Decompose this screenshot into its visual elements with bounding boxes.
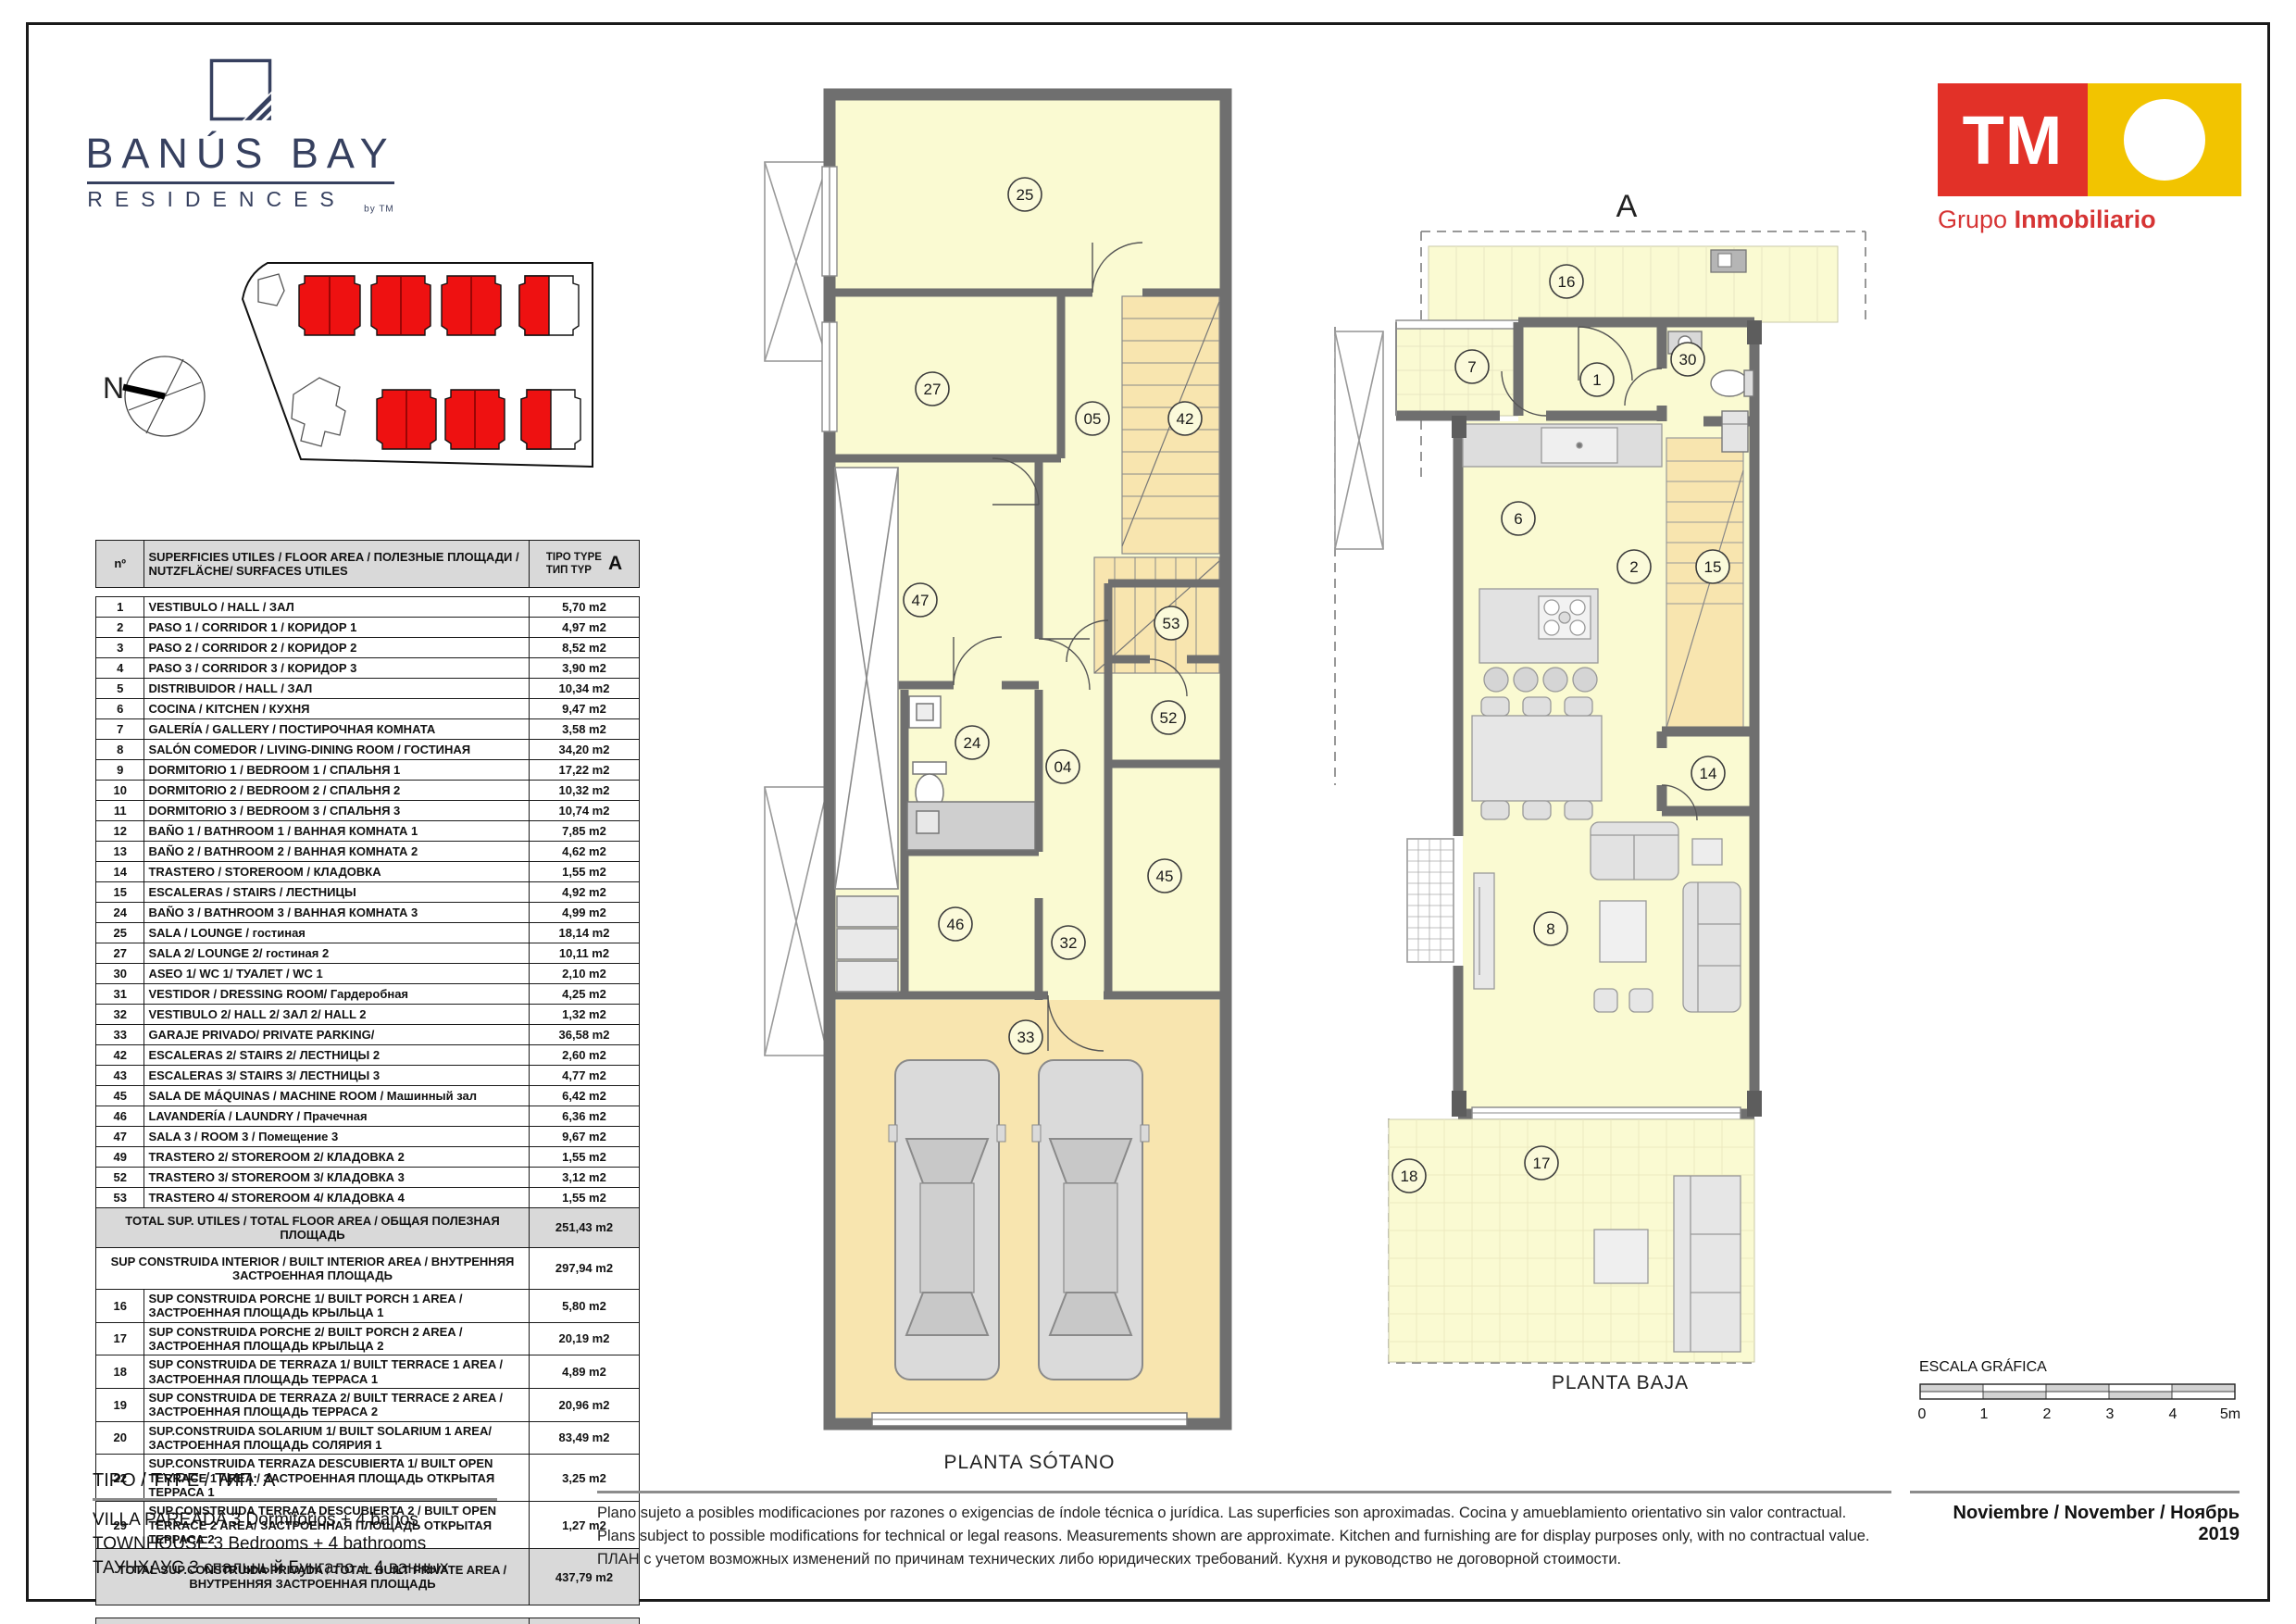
room-label: 16 <box>1550 265 1583 298</box>
svg-text:17: 17 <box>1533 1155 1551 1172</box>
svg-text:42: 42 <box>1177 410 1194 428</box>
scale-title: ESCALA GRÁFICA <box>1919 1359 2240 1376</box>
area-row: 11DORMITORIO 3 / BEDROOM 3 / СПАЛЬНЯ 310… <box>96 801 640 821</box>
area-row: 52TRASTERO 3/ STOREROOM 3/ КЛАДОВКА 33,1… <box>96 1168 640 1188</box>
area-row: 12BAÑO 1 / BATHROOM 1 / ВАННАЯ КОМНАТА 1… <box>96 821 640 842</box>
area-row: 2PASO 1 / CORRIDOR 1 / КОРИДОР 14,97 m2 <box>96 618 640 638</box>
area-row: 18SUP CONSTRUIDA DE TERRAZA 1/ BUILT TER… <box>96 1355 640 1389</box>
scale-tick-labels: 0 1 2 3 4 5m <box>1919 1406 2240 1425</box>
tm-yellow-block <box>2088 83 2241 196</box>
brand-name: BANÚS BAY <box>85 130 396 178</box>
area-row: 24BAÑO 3 / BATHROOM 3 / ВАННАЯ КОМНАТА 3… <box>96 903 640 923</box>
area-row: 49TRASTERO 2/ STOREROOM 2/ КЛАДОВКА 21,5… <box>96 1147 640 1168</box>
svg-text:6: 6 <box>1514 510 1522 528</box>
scale-bar: ESCALA GRÁFICA 0 1 2 3 4 5m <box>1919 1359 2240 1425</box>
room-label: 42 <box>1168 402 1202 435</box>
area-row: 25SALA / LOUNGE / гостиная18,14 m2 <box>96 923 640 943</box>
floorplan-sotano: 25 27 05 42 47 53 24 52 04 45 46 32 33 <box>752 83 1252 1444</box>
plan-sheet: BANÚS BAY RESIDENCES by TM N <box>0 0 2296 1624</box>
area-row: 45SALA DE MÁQUINAS / MACHINE ROOM / Маши… <box>96 1086 640 1106</box>
room-label: 7 <box>1455 350 1489 383</box>
brand-square-icon <box>208 57 273 122</box>
svg-text:04: 04 <box>1054 758 1072 776</box>
room-label: 32 <box>1052 926 1085 959</box>
area-row: 15ESCALERAS / STAIRS / ЛЕСТНИЦЫ4,92 m2 <box>96 882 640 903</box>
type-label: TIPO / TYPE / ТИП: A <box>93 1470 497 1492</box>
footer-date-block: Noviembre / November / Ноябрь 2019 <box>1910 1491 2240 1545</box>
area-row: 1VESTIBULO / HALL / ЗАЛ5,70 m2 <box>96 597 640 618</box>
brand-logo: BANÚS BAY RESIDENCES by TM <box>85 57 396 215</box>
svg-text:47: 47 <box>912 592 930 609</box>
area-row: 4PASO 3 / CORRIDOR 3 / КОРИДОР 33,90 m2 <box>96 658 640 679</box>
unit-desc-ru: ТАУНХАУС 3 спальный Бунгало + 4 ванных <box>93 1556 497 1580</box>
brand-divider <box>87 181 394 184</box>
svg-text:53: 53 <box>1163 615 1180 632</box>
garden-area-table: SUP. JARDIN desde-hasta / GARDEN AREA fr… <box>95 1618 640 1624</box>
compass-icon: N <box>95 341 211 450</box>
baja-caption: PLANTA BAJA <box>1435 1372 1805 1394</box>
developer-subtitle: Grupo Inmobiliario <box>1938 206 2243 234</box>
room-label: 27 <box>916 372 949 406</box>
footer-type-block: TIPO / TYPE / ТИП: A VILLA PAREADA 3 Dor… <box>93 1470 497 1580</box>
area-table-header: nº SUPERFICIES UTILES / FLOOR AREA / ПОЛ… <box>95 540 640 588</box>
area-row: 47SALA 3 / ROOM 3 / Помещение 39,67 m2 <box>96 1127 640 1147</box>
area-row: 7GALERÍA / GALLERY / ПОСТИРОЧНАЯ КОМНАТА… <box>96 719 640 740</box>
area-row: 27SALA 2/ LOUNGE 2/ гостиная 210,11 m2 <box>96 943 640 964</box>
room-label: 52 <box>1152 701 1185 734</box>
room-label: 45 <box>1148 859 1181 893</box>
room-label: 33 <box>1009 1020 1042 1054</box>
divider <box>1910 1491 2240 1493</box>
svg-text:18: 18 <box>1401 1168 1418 1185</box>
svg-text:24: 24 <box>964 734 981 752</box>
sotano-caption: PLANTA SÓTANO <box>844 1452 1215 1474</box>
tm-circle-icon <box>2124 99 2205 181</box>
tm-red-block: TM <box>1938 83 2088 196</box>
area-row: 5DISTRIBUIDOR / HALL / ЗАЛ10,34 m2 <box>96 679 640 699</box>
area-row: 9DORMITORIO 1 / BEDROOM 1 / СПАЛЬНЯ 117,… <box>96 760 640 781</box>
developer-logo: TM Grupo Inmobiliario <box>1938 83 2243 234</box>
footer-disclaimer-block: Plano sujeto a posibles modificaciones p… <box>597 1491 1891 1571</box>
room-label: 17 <box>1525 1146 1558 1180</box>
room-label: 8 <box>1534 912 1567 945</box>
room-label: 24 <box>955 726 989 759</box>
svg-text:15: 15 <box>1704 558 1722 576</box>
area-row: 16SUP CONSTRUIDA PORCHE 1/ BUILT PORCH 1… <box>96 1290 640 1323</box>
brand-subname: RESIDENCES by TM <box>85 187 396 215</box>
area-row: 43ESCALERAS 3/ STAIRS 3/ ЛЕСТНИЦЫ 34,77 … <box>96 1066 640 1086</box>
area-row: 30ASEO 1/ WC 1/ ТУАЛЕТ / WC 12,10 m2 <box>96 964 640 984</box>
area-table-body: 1VESTIBULO / HALL / ЗАЛ5,70 m22PASO 1 / … <box>95 596 640 1605</box>
garden-row: SUP. JARDIN desde-hasta / GARDEN AREA fr… <box>96 1618 640 1624</box>
area-row: 46LAVANDERÍA / LAUNDRY / Прачечная6,36 m… <box>96 1106 640 1127</box>
room-label: 18 <box>1392 1159 1426 1193</box>
room-label: 53 <box>1154 606 1188 640</box>
scale-bar-graphic <box>1919 1383 2236 1400</box>
total-utiles-row: TOTAL SUP. UTILES / TOTAL FLOOR AREA / О… <box>96 1208 640 1248</box>
svg-text:16: 16 <box>1558 273 1576 291</box>
area-row: 3PASO 2 / CORRIDOR 2 / КОРИДОР 28,52 m2 <box>96 638 640 658</box>
disclaimer-es: Plano sujeto a posibles modificaciones p… <box>597 1502 1891 1525</box>
area-row: 31VESTIDOR / DRESSING ROOM/ Гардеробная4… <box>96 984 640 1005</box>
area-row: 32VESTIBULO 2/ HALL 2/ ЗАЛ 2/ HALL 21,32… <box>96 1005 640 1025</box>
floorplan-baja: A <box>1333 193 1907 1387</box>
area-row: 19SUP CONSTRUIDA DE TERRAZA 2/ BUILT TER… <box>96 1388 640 1421</box>
svg-text:32: 32 <box>1060 934 1078 952</box>
area-row: 14TRASTERO / STOREROOM / КЛАДОВКА1,55 m2 <box>96 862 640 882</box>
area-row: 17SUP CONSTRUIDA PORCHE 2/ BUILT PORCH 2… <box>96 1322 640 1355</box>
area-table: nº SUPERFICIES UTILES / FLOOR AREA / ПОЛ… <box>95 540 640 1624</box>
svg-text:14: 14 <box>1700 765 1717 782</box>
built-interior-row: SUP CONSTRUIDA INTERIOR / BUILT INTERIOR… <box>96 1248 640 1290</box>
unit-desc-es: VILLA PAREADA 3 Dormitorios + 4 baños <box>93 1508 497 1532</box>
room-label: 05 <box>1076 402 1109 435</box>
header-desc: SUPERFICIES UTILES / FLOOR AREA / ПОЛЕЗН… <box>144 541 530 588</box>
svg-text:8: 8 <box>1546 920 1554 938</box>
area-row: 13BAÑO 2 / BATHROOM 2 / ВАННАЯ КОМНАТА 2… <box>96 842 640 862</box>
room-label: 46 <box>939 907 972 941</box>
room-label: 2 <box>1617 550 1651 583</box>
area-row: 6COCINA / KITCHEN / КУХНЯ9,47 m2 <box>96 699 640 719</box>
disclaimer-ru: ПЛАН с учетом возможных изменений по при… <box>597 1548 1891 1571</box>
svg-text:2: 2 <box>1629 558 1638 576</box>
svg-text:N: N <box>103 371 124 405</box>
area-row: 20SUP.CONSTRUIDA SOLARIUM 1/ BUILT SOLAR… <box>96 1421 640 1455</box>
room-label: 25 <box>1008 178 1042 211</box>
type-marker: A <box>1616 193 1638 224</box>
svg-text:05: 05 <box>1084 410 1102 428</box>
unit-desc-en: TOWNHOUSE 3 Bedrooms + 4 bathrooms <box>93 1532 497 1556</box>
area-row: 8SALÓN COMEDOR / LIVING-DINING ROOM / ГО… <box>96 740 640 760</box>
svg-text:33: 33 <box>1017 1029 1035 1046</box>
site-plan <box>236 246 634 493</box>
room-label: 30 <box>1671 343 1704 376</box>
svg-text:25: 25 <box>1017 186 1034 204</box>
room-label: 04 <box>1046 750 1079 783</box>
svg-text:7: 7 <box>1467 358 1476 376</box>
area-row: 42ESCALERAS 2/ STAIRS 2/ ЛЕСТНИЦЫ 22,60 … <box>96 1045 640 1066</box>
svg-text:1: 1 <box>1592 371 1601 389</box>
room-label: 14 <box>1691 756 1725 790</box>
svg-text:30: 30 <box>1679 351 1697 369</box>
divider <box>597 1491 1891 1493</box>
svg-text:45: 45 <box>1156 868 1174 885</box>
room-label: 47 <box>904 583 937 617</box>
area-row: 53TRASTERO 4/ STOREROOM 4/ КЛАДОВКА 41,5… <box>96 1188 640 1208</box>
svg-text:46: 46 <box>947 916 965 933</box>
header-type: TIPO TYPEТИП TYP A <box>529 541 639 588</box>
svg-text:52: 52 <box>1160 709 1178 727</box>
room-label: 6 <box>1502 502 1535 535</box>
area-row: 33GARAJE PRIVADO/ PRIVATE PARKING/36,58 … <box>96 1025 640 1045</box>
area-row: 10DORMITORIO 2 / BEDROOM 2 / СПАЛЬНЯ 210… <box>96 781 640 801</box>
header-num: nº <box>96 541 144 588</box>
plan-date: Noviembre / November / Ноябрь 2019 <box>1910 1503 2240 1545</box>
room-label: 1 <box>1580 363 1614 396</box>
divider <box>93 1498 497 1501</box>
disclaimer-en: Plans subject to possible modifications … <box>597 1525 1891 1548</box>
room-label: 15 <box>1696 550 1729 583</box>
svg-text:27: 27 <box>924 381 942 398</box>
